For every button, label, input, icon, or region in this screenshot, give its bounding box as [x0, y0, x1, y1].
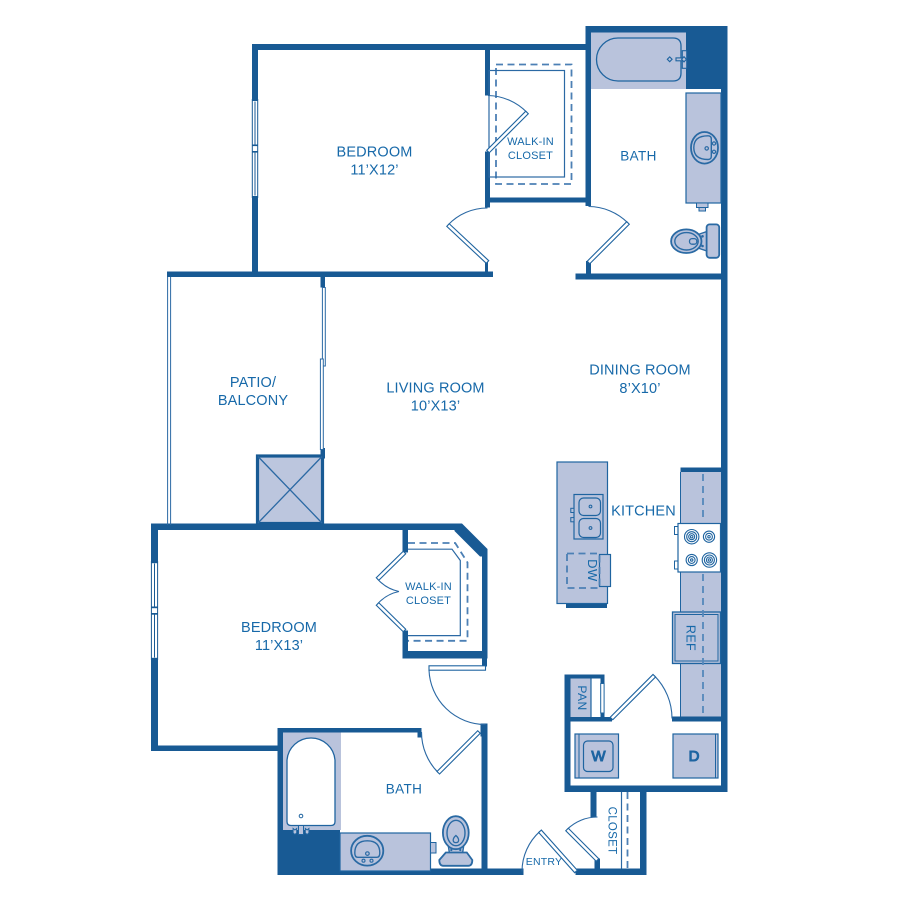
- svg-text:D: D: [689, 748, 700, 765]
- svg-text:CLOSET: CLOSET: [605, 807, 617, 855]
- svg-text:LIVING ROOM: LIVING ROOM: [386, 380, 484, 396]
- svg-text:WALK-IN: WALK-IN: [405, 581, 452, 593]
- svg-text:ENTRY: ENTRY: [526, 856, 562, 868]
- svg-text:10’X13’: 10’X13’: [411, 398, 460, 414]
- svg-text:PAN: PAN: [575, 685, 589, 710]
- svg-text:REF: REF: [684, 625, 698, 651]
- svg-text:CLOSET: CLOSET: [508, 150, 553, 162]
- svg-text:11’X12’: 11’X12’: [350, 162, 398, 178]
- svg-text:KITCHEN: KITCHEN: [611, 503, 676, 519]
- svg-text:W: W: [591, 748, 606, 765]
- svg-text:WALK-IN: WALK-IN: [507, 136, 554, 148]
- svg-text:CLOSET: CLOSET: [406, 595, 451, 607]
- svg-text:8’X10’: 8’X10’: [619, 381, 660, 397]
- svg-text:BALCONY: BALCONY: [218, 393, 289, 409]
- svg-text:PATIO/: PATIO/: [230, 375, 277, 391]
- svg-text:DINING ROOM: DINING ROOM: [589, 362, 691, 378]
- svg-text:BEDROOM: BEDROOM: [241, 620, 317, 636]
- svg-text:BEDROOM: BEDROOM: [337, 144, 413, 160]
- svg-text:11’X13’: 11’X13’: [255, 638, 303, 654]
- svg-text:BATH: BATH: [386, 782, 423, 797]
- svg-text:BATH: BATH: [620, 149, 657, 164]
- svg-text:DW: DW: [585, 559, 600, 582]
